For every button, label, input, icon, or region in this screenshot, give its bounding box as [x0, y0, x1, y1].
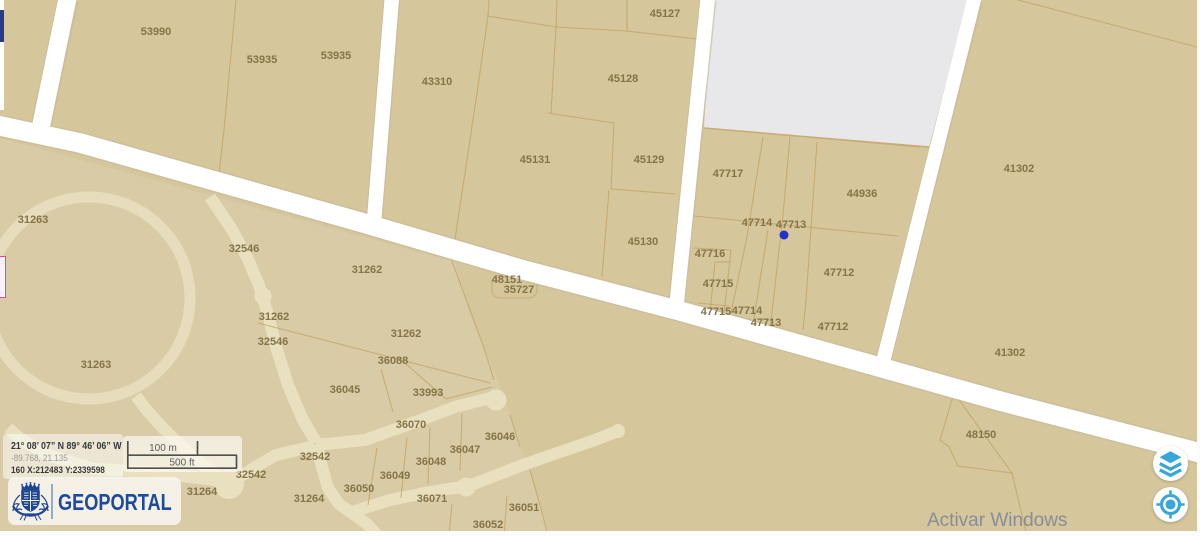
svg-text:41302: 41302 [995, 347, 1026, 359]
svg-text:31264: 31264 [187, 486, 218, 498]
svg-text:45127: 45127 [650, 8, 681, 20]
svg-text:45131: 45131 [520, 154, 551, 166]
svg-text:48150: 48150 [966, 429, 997, 441]
svg-text:32542: 32542 [300, 451, 331, 463]
svg-text:31262: 31262 [259, 311, 290, 323]
svg-text:31263: 31263 [18, 214, 49, 226]
svg-text:47715: 47715 [703, 278, 734, 290]
svg-text:47712: 47712 [818, 321, 849, 333]
svg-text:36051: 36051 [509, 502, 540, 514]
svg-text:32546: 32546 [229, 243, 260, 255]
svg-text:43310: 43310 [422, 76, 453, 88]
svg-text:36045: 36045 [330, 384, 361, 396]
svg-text:36071: 36071 [417, 493, 448, 505]
svg-text:33993: 33993 [413, 387, 444, 399]
svg-text:36049: 36049 [380, 470, 411, 482]
svg-text:31264: 31264 [294, 493, 325, 505]
svg-text:36052: 36052 [473, 519, 504, 531]
svg-text:36050: 36050 [344, 483, 375, 495]
svg-text:35727: 35727 [504, 284, 535, 296]
svg-text:47715: 47715 [701, 306, 732, 318]
svg-text:44936: 44936 [847, 188, 878, 200]
svg-text:31262: 31262 [352, 264, 383, 276]
svg-text:47713: 47713 [751, 317, 782, 329]
svg-text:45129: 45129 [634, 154, 665, 166]
svg-text:36088: 36088 [378, 355, 409, 367]
svg-text:47714: 47714 [742, 217, 773, 229]
svg-text:36047: 36047 [450, 444, 481, 456]
svg-text:36070: 36070 [396, 419, 427, 431]
svg-text:31262: 31262 [391, 328, 422, 340]
svg-text:47713: 47713 [776, 219, 807, 231]
svg-text:47712: 47712 [824, 267, 855, 279]
svg-text:36046: 36046 [485, 431, 516, 443]
svg-text:53990: 53990 [141, 26, 172, 38]
svg-text:53935: 53935 [247, 54, 278, 66]
svg-text:47717: 47717 [713, 168, 744, 180]
svg-text:32546: 32546 [258, 336, 289, 348]
svg-text:47716: 47716 [695, 248, 726, 260]
svg-text:500 ft: 500 ft [169, 458, 194, 469]
svg-text:45130: 45130 [628, 236, 659, 248]
svg-text:45128: 45128 [608, 73, 639, 85]
svg-text:47714: 47714 [732, 305, 763, 317]
svg-text:100 m: 100 m [149, 443, 177, 454]
svg-text:41302: 41302 [1004, 163, 1035, 175]
svg-text:53935: 53935 [321, 50, 352, 62]
svg-text:36048: 36048 [416, 456, 447, 468]
svg-text:31263: 31263 [81, 359, 112, 371]
